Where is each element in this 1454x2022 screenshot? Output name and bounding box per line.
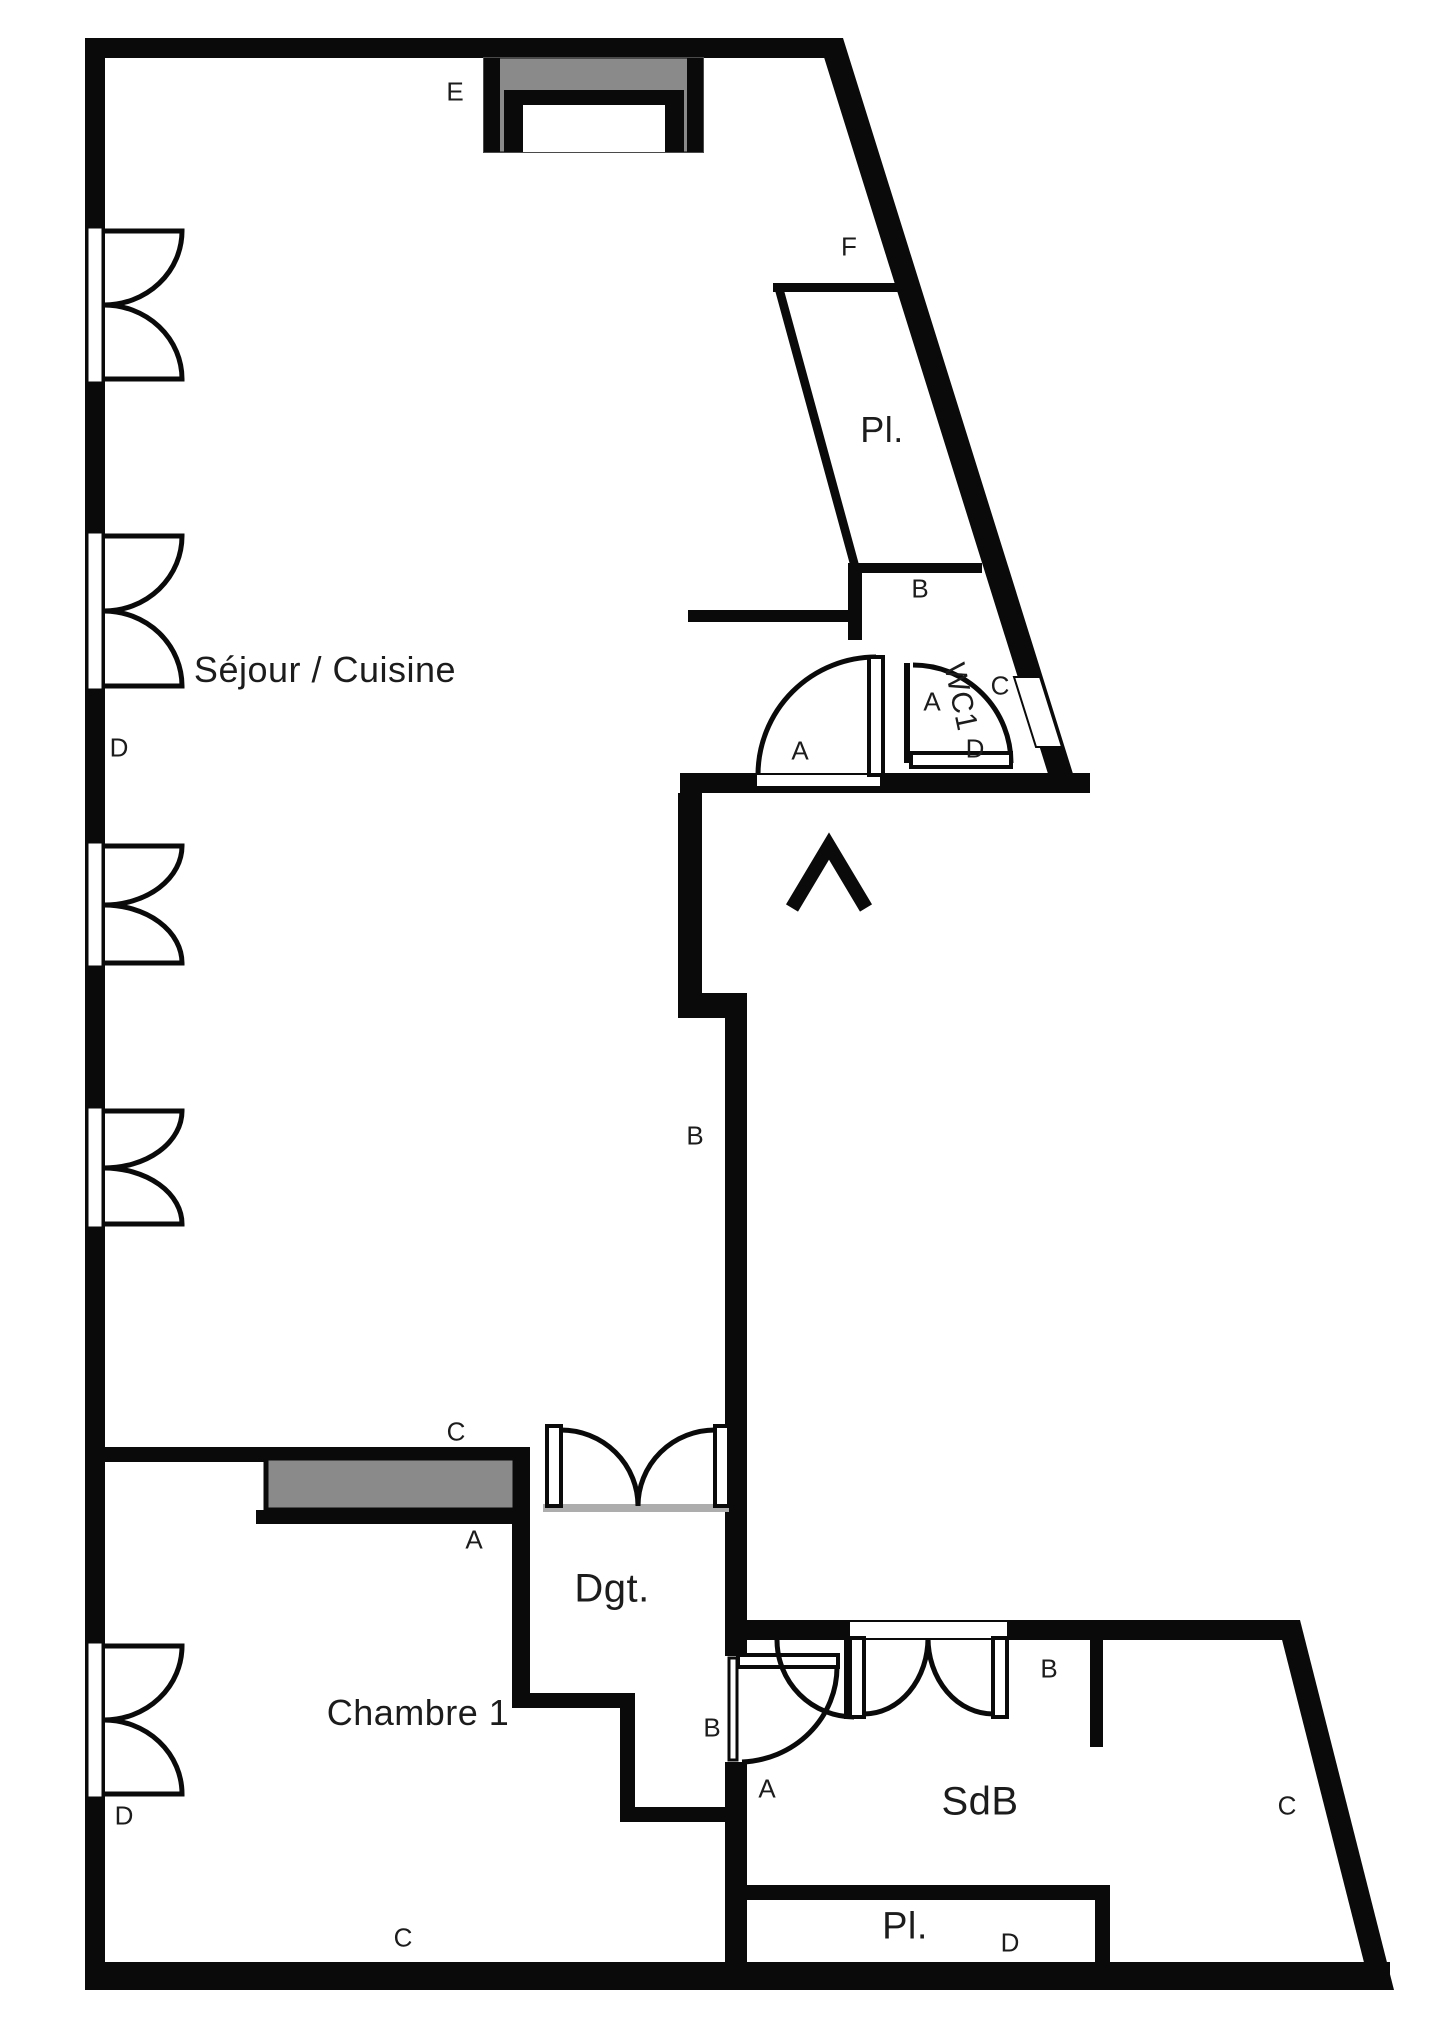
- wall-marker-B: B: [703, 1713, 720, 1744]
- floor-plan-drawing: [0, 0, 1454, 2022]
- slant-window-icon: [1014, 677, 1062, 747]
- placard-left-wall: [773, 283, 861, 572]
- wc-left-wall: [848, 563, 862, 640]
- kitchen-partition-wall: [688, 610, 848, 622]
- niche-icon: [484, 58, 703, 152]
- sdb-top-wall: [745, 1620, 1290, 1640]
- chambre-nook-bottom-wall: [620, 1807, 747, 1822]
- window-icon: [87, 1107, 182, 1228]
- placard-top-wall: [773, 283, 908, 292]
- console-left-leg: [504, 105, 523, 152]
- wall-marker-D: D: [110, 733, 129, 764]
- wall-marker-B: B: [686, 1121, 703, 1152]
- wall-marker-A: A: [791, 736, 808, 767]
- room-label-degagement: Dgt.: [574, 1567, 649, 1612]
- wall-marker-D: D: [1001, 1928, 1020, 1959]
- wall-marker-C: C: [991, 671, 1010, 702]
- chambre-nook-top-wall: [512, 1693, 635, 1708]
- door-threshold: [757, 775, 880, 786]
- console-right-leg: [665, 105, 684, 152]
- console-inner: [523, 105, 665, 152]
- chambre-nook-right-wall: [620, 1693, 635, 1822]
- placard-bottom-wall: [852, 563, 982, 573]
- door-jamb: [904, 663, 910, 763]
- room-label-placard-bas: Pl.: [882, 1906, 928, 1949]
- room-label-sejour-cuisine: Séjour / Cuisine: [194, 649, 456, 691]
- corridor-wall-below-door: [725, 1760, 747, 1970]
- corridor-wall-upper: [678, 793, 702, 1018]
- wall-marker-A: A: [923, 687, 940, 718]
- wall-marker-B: B: [911, 574, 928, 605]
- wall-marker-D: D: [115, 1801, 134, 1832]
- wall-marker-B: B: [1040, 1654, 1057, 1685]
- room-label-placard-haut: Pl.: [860, 409, 904, 451]
- door-leaf: [850, 1638, 864, 1717]
- door-leaf: [738, 1655, 838, 1667]
- door-jamb: [729, 1658, 737, 1760]
- wall-marker-C: C: [1278, 1791, 1297, 1822]
- niche-left-bar: [484, 58, 500, 152]
- storage-icon: [266, 1458, 515, 1510]
- corridor-wall-lower: [725, 993, 747, 1658]
- room-label-salle-de-bain: SdB: [941, 1780, 1018, 1825]
- wall-marker-C: C: [447, 1417, 466, 1448]
- door-leaf: [911, 753, 1011, 767]
- floor-plan: Séjour / CuisinePl.WC1Dgt.Chambre 1SdBPl…: [0, 0, 1454, 2022]
- room-label-chambre-1: Chambre 1: [327, 1692, 510, 1734]
- double-door-icon: [543, 1426, 729, 1512]
- double-door-icon: [850, 1622, 1007, 1717]
- placard-bas-top-wall: [740, 1885, 1110, 1900]
- door-leaf: [547, 1426, 561, 1506]
- placard-bas-right-wall: [1095, 1885, 1110, 1975]
- entrance-arrow-icon: [792, 846, 866, 908]
- niche-right-bar: [687, 58, 703, 152]
- window-icon: [87, 532, 182, 690]
- wall-marker-D: D: [966, 734, 985, 765]
- wall-marker-C: C: [394, 1923, 413, 1954]
- wall-marker-E: E: [446, 77, 463, 108]
- door-threshold: [850, 1622, 1007, 1638]
- wall-marker-F: F: [841, 232, 857, 263]
- wall-marker-A: A: [758, 1774, 775, 1805]
- door-leaf: [869, 657, 883, 775]
- window-icon: [87, 227, 182, 383]
- window-icon: [87, 1642, 182, 1798]
- door-leaf: [715, 1426, 729, 1506]
- wall-marker-A: A: [465, 1525, 482, 1556]
- console-top: [504, 90, 684, 105]
- door-swing-icon: [757, 657, 883, 786]
- sdb-stub-wall: [1090, 1638, 1103, 1747]
- window-icon: [87, 842, 182, 967]
- top-wall: [85, 38, 840, 58]
- door-leaf: [993, 1638, 1007, 1717]
